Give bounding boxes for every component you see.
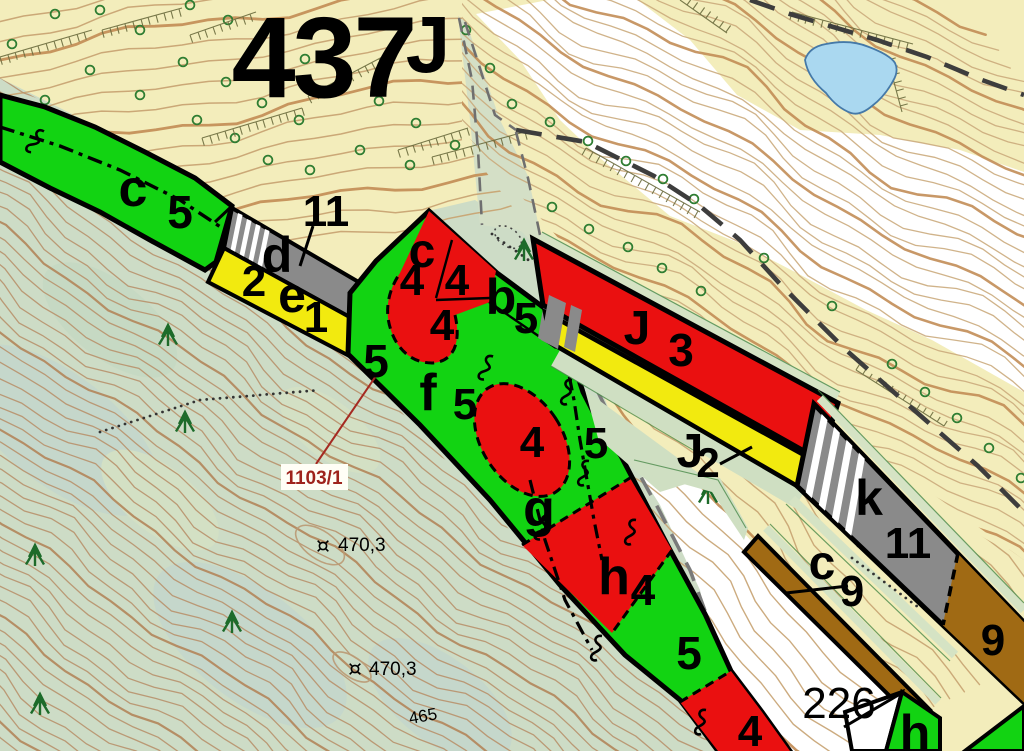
svg-text:J: J — [406, 0, 451, 89]
svg-text:k: k — [855, 470, 883, 526]
svg-text:4: 4 — [430, 301, 455, 350]
svg-text:5: 5 — [453, 380, 477, 429]
svg-text:11: 11 — [303, 187, 350, 236]
svg-text:h: h — [900, 705, 931, 751]
svg-text:470,3: 470,3 — [369, 659, 417, 680]
svg-text:5: 5 — [514, 294, 538, 343]
svg-text:1103/1: 1103/1 — [285, 468, 342, 489]
svg-text:g: g — [523, 480, 555, 538]
svg-text:1: 1 — [304, 293, 328, 342]
svg-text:c: c — [809, 537, 836, 590]
svg-text:4: 4 — [445, 256, 470, 305]
svg-text:e: e — [278, 267, 306, 323]
svg-text:J: J — [624, 302, 651, 355]
svg-text:5: 5 — [676, 627, 702, 679]
svg-text:5: 5 — [363, 335, 389, 387]
svg-text:4: 4 — [738, 707, 763, 751]
svg-text:4: 4 — [631, 566, 656, 615]
svg-text:5: 5 — [167, 186, 193, 238]
svg-text:b: b — [486, 269, 517, 325]
svg-text:c: c — [119, 160, 148, 218]
svg-text:4: 4 — [520, 418, 545, 467]
svg-text:226: 226 — [802, 679, 875, 728]
svg-text:2: 2 — [696, 439, 719, 486]
svg-text:3: 3 — [668, 324, 694, 376]
svg-text:f: f — [419, 364, 437, 422]
svg-text:470,3: 470,3 — [338, 535, 386, 556]
svg-text:5: 5 — [584, 419, 608, 468]
svg-text:4: 4 — [400, 256, 425, 305]
svg-text:11: 11 — [885, 519, 932, 568]
svg-text:h: h — [598, 548, 630, 606]
svg-text:9: 9 — [981, 616, 1005, 665]
svg-text:2: 2 — [242, 257, 266, 306]
svg-text:9: 9 — [840, 567, 864, 616]
svg-text:437: 437 — [232, 0, 415, 122]
